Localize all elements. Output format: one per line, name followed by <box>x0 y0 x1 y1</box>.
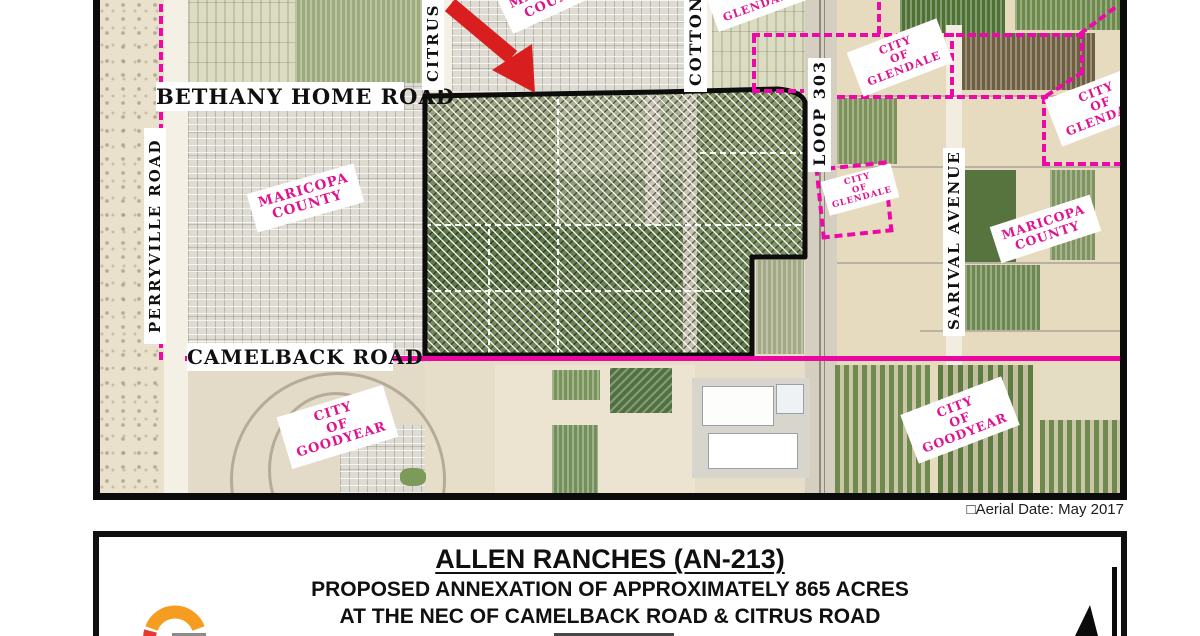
label-sarival-avenue: SARIVAL AVENUE <box>943 148 965 336</box>
title-block: ALLEN RANCHES (AN-213) PROPOSED ANNEXATI… <box>93 531 1127 636</box>
subtitle-line-2: AT THE NEC OF CAMELBACK ROAD & CITRUS RO… <box>99 605 1121 629</box>
north-arrow <box>1029 557 1119 636</box>
label-perryville-road: PERRYVILLE ROAD <box>144 128 166 344</box>
label-bethany-home-road: BETHANY HOME ROAD <box>156 82 404 111</box>
aerial-map: BETHANY HOME ROAD CAMELBACK ROAD PERRYVI… <box>93 0 1127 500</box>
label-citrus-road: CITRUS ROAD <box>422 0 444 90</box>
page-title: ALLEN RANCHES (AN-213) <box>99 544 1121 575</box>
subtitle-line-1: PROPOSED ANNEXATION OF APPROXIMATELY 865… <box>99 578 1121 602</box>
aerial-date-note: □Aerial Date: May 2017 <box>724 501 1124 518</box>
label-loop-303: LOOP 303 <box>808 58 831 172</box>
label-cotton-lane: COTTON LANE <box>684 0 707 92</box>
label-camelback-road: CAMELBACK ROAD <box>187 343 393 371</box>
